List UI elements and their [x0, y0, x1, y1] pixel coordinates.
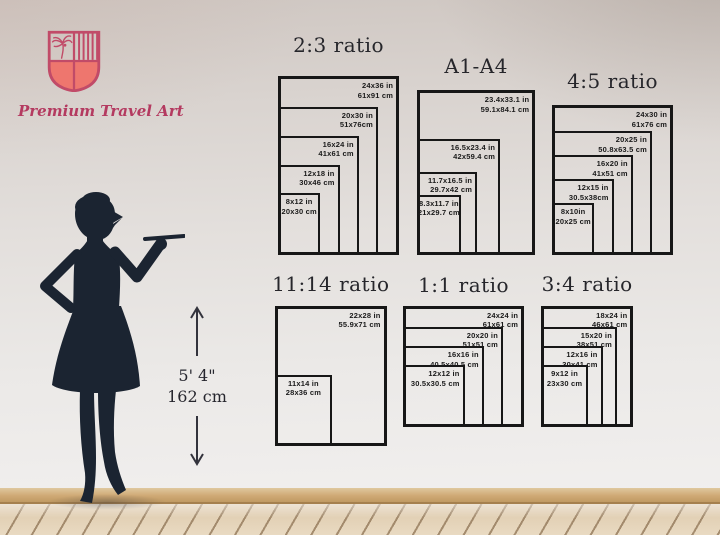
- size-rect-ratio-1-1-12x12-in: 12x12 in30.5x30.5 cm: [403, 365, 465, 427]
- size-label: 8.3x11.7 in21x29.7 cm: [418, 199, 460, 218]
- size-label: 20x30 in51x76cm: [280, 111, 376, 130]
- size-diagram-ratio-11-14: 22x28 in55.9x71 cm11x14 in28x36 cm: [275, 306, 387, 446]
- height-imperial: 5' 4": [178, 365, 215, 386]
- size-rect-ratio-2-3-8x12-in: 8x12 in20x30 cm: [278, 193, 320, 255]
- height-indicator: 5' 4" 162 cm: [165, 306, 229, 466]
- size-diagram-ratio-2-3: 24x36 in61x91 cm20x30 in51x76cm16x24 in4…: [278, 76, 399, 255]
- size-label: 12x15 in30.5x38cm: [554, 183, 612, 202]
- size-guide-poster: Premium Travel Art: [0, 0, 720, 535]
- diagram-title-ratio-4-5: 4:5 ratio: [567, 69, 658, 93]
- size-label: 22x28 in55.9x71 cm: [278, 311, 384, 330]
- size-label: 11.7x16.5 in29.7x42 cm: [419, 176, 475, 195]
- size-label: 24x30 in61x76 cm: [555, 110, 670, 129]
- brand-name: Premium Travel Art: [18, 102, 158, 120]
- size-rect-a1-a4-8.3x11.7-in: 8.3x11.7 in21x29.7 cm: [417, 195, 461, 255]
- size-label: 12x18 in30x46 cm: [280, 169, 338, 188]
- size-label: 24x36 in61x91 cm: [281, 81, 396, 100]
- size-rect-ratio-4-5-8x10in: 8x10in20x25 cm: [552, 203, 594, 255]
- size-diagram-ratio-4-5: 24x30 in61x76 cm20x25 in50.8x63.5 cm16x2…: [552, 105, 673, 255]
- size-rect-ratio-3-4-9x12-in: 9x12 in23x30 cm: [541, 365, 588, 427]
- size-label: 12x12 in30.5x30.5 cm: [405, 369, 463, 388]
- diagram-title-ratio-3-4: 3:4 ratio: [542, 272, 633, 296]
- size-label: 23.4x33.1 in59.1x84.1 cm: [420, 95, 532, 114]
- size-diagram-ratio-1-1: 24x24 in61x61 cm20x20 in51x51 cm16x16 in…: [403, 306, 524, 427]
- size-diagram-ratio-3-4: 18x24 in46x61 cm15x20 in38x51 cm12x16 in…: [541, 306, 633, 427]
- size-rect-ratio-11-14-11x14-in: 11x14 in28x36 cm: [275, 375, 332, 446]
- arrow-up-icon: [189, 306, 205, 358]
- size-label: 8x10in20x25 cm: [555, 207, 590, 226]
- diagram-title-ratio-11-14: 11:14 ratio: [272, 272, 389, 296]
- size-diagram-a1-a4: 23.4x33.1 in59.1x84.1 cm16.5x23.4 in42x5…: [417, 90, 535, 255]
- diagram-title-ratio-1-1: 1:1 ratio: [418, 273, 509, 297]
- brand-logo: Premium Travel Art: [18, 30, 168, 120]
- height-metric: 162 cm: [167, 386, 227, 407]
- size-label: 9x12 in23x30 cm: [547, 369, 582, 388]
- diagram-title-a1-a4: A1-A4: [444, 54, 508, 78]
- size-label: 16.5x23.4 in42x59.4 cm: [419, 143, 498, 162]
- shield-crest-icon: [18, 30, 168, 92]
- size-label: 8x12 in20x30 cm: [281, 197, 316, 216]
- size-label: 16x20 in41x51 cm: [554, 159, 631, 178]
- size-label: 11x14 in28x36 cm: [286, 379, 321, 398]
- diagram-title-ratio-2-3: 2:3 ratio: [293, 33, 384, 57]
- palm-tree-icon: [53, 36, 72, 58]
- woman-silhouette: [35, 190, 185, 510]
- size-label: 20x25 in50.8x63.5 cm: [554, 135, 650, 154]
- size-label: 16x24 in41x61 cm: [280, 140, 357, 159]
- arrow-down-icon: [189, 414, 205, 466]
